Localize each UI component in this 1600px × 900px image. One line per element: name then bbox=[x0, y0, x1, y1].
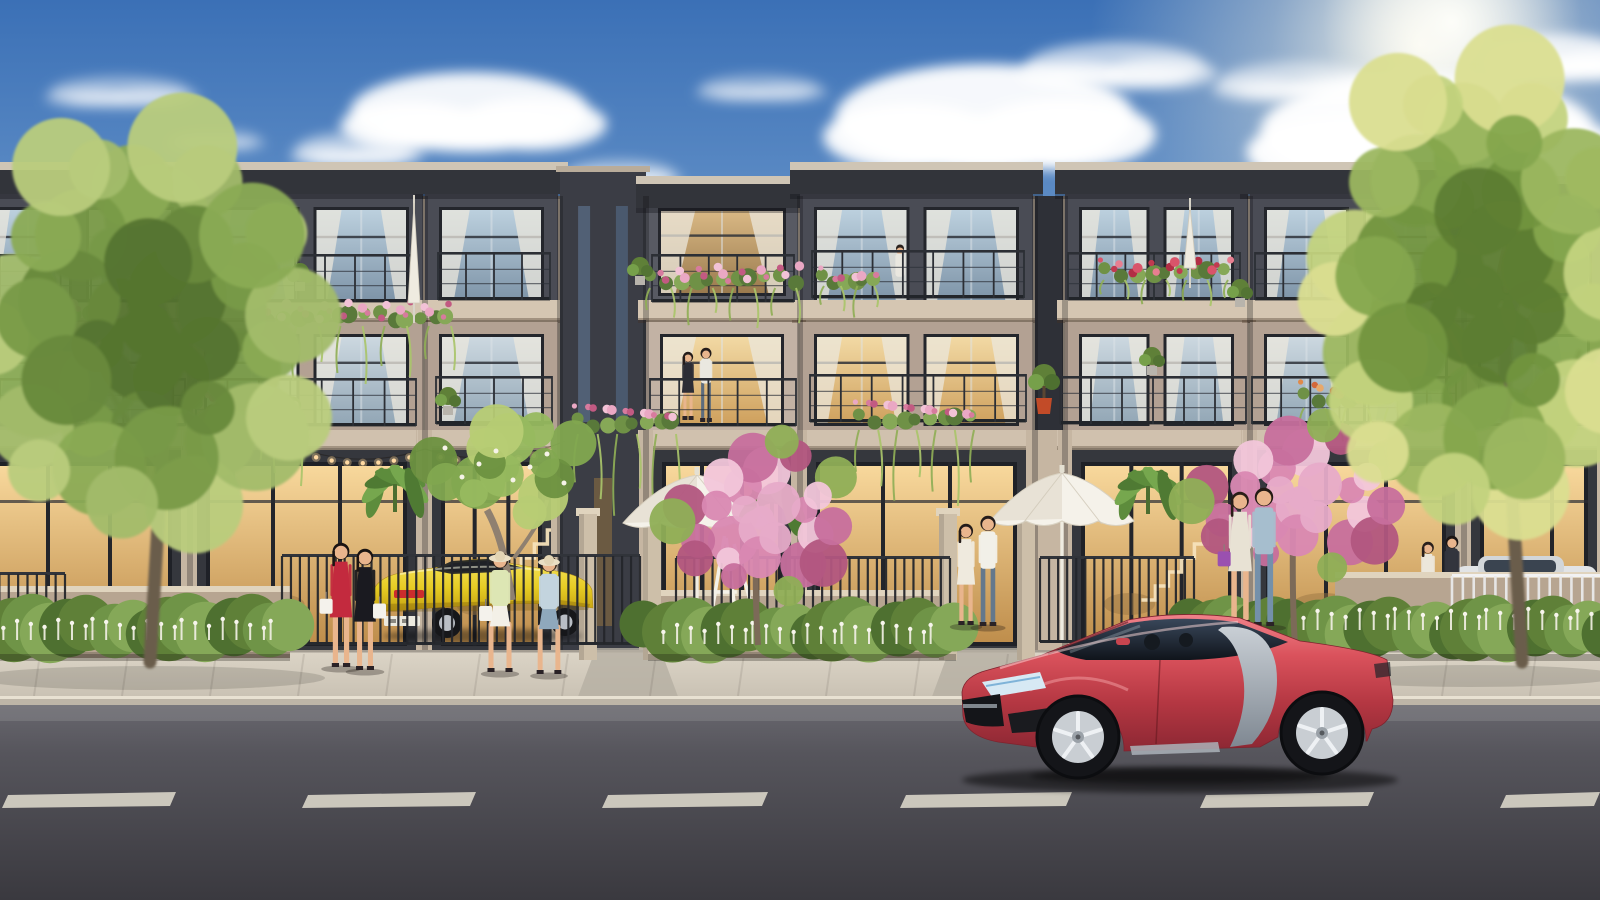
gate-pillar bbox=[1014, 508, 1038, 660]
scene-canvas bbox=[0, 0, 1600, 900]
front-wheel bbox=[1037, 696, 1119, 778]
architectural-rendering-townhouses bbox=[0, 0, 1600, 900]
rear-wheel bbox=[1281, 692, 1363, 774]
